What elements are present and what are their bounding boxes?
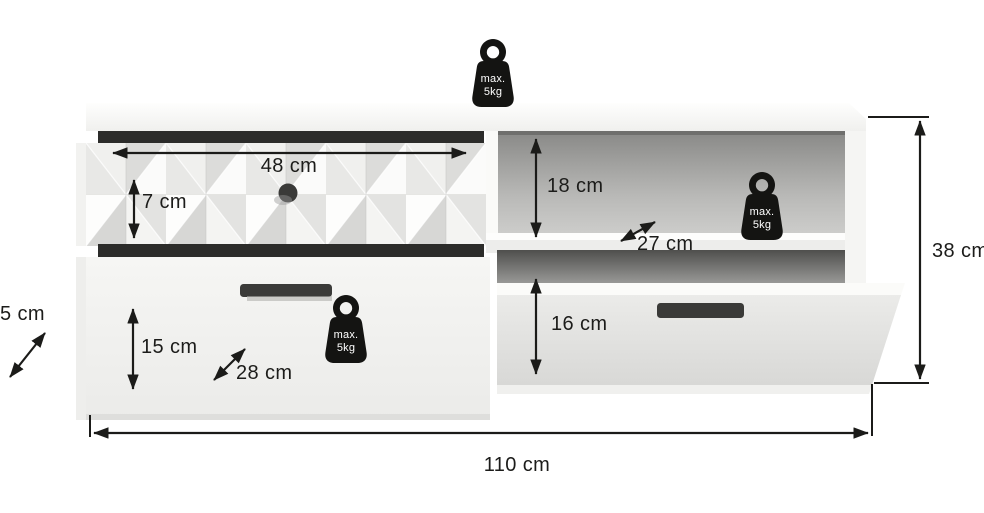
weight-limit-badge-drawer: max. 5kg: [313, 293, 379, 367]
weight-limit-text-max: max.: [729, 206, 795, 219]
bottom-recess-groove: [98, 244, 484, 257]
bottom-drawer-base-shadow: [86, 414, 490, 420]
dim-label-48cm: 48 cm: [229, 155, 349, 177]
knob-shadow: [274, 195, 292, 205]
weight-limit-badge-shelf: max. 5kg: [729, 170, 795, 244]
dim-label-110cm: 110 cm: [447, 454, 587, 476]
weight-limit-text-5kg: 5kg: [729, 219, 795, 232]
flap-bottom-edge: [497, 385, 872, 394]
furniture-dimension-diagram: 48 cm 7 cm 18 cm 27 cm 16 cm 15 cm 28 cm…: [0, 0, 984, 513]
bottom-drawer-side-edge: [76, 257, 86, 420]
drawer-side-edge: [76, 143, 86, 246]
weight-limit-text-5kg: 5kg: [313, 342, 379, 355]
flap-handle: [657, 303, 744, 318]
dim-label-16cm: 16 cm: [551, 313, 607, 335]
dim-label-15cm: 15 cm: [141, 336, 197, 358]
dim-label-28cm: 28 cm: [236, 362, 292, 384]
flap-top-edge: [497, 283, 905, 295]
weight-limit-text-max: max.: [460, 73, 526, 86]
right-side-panel: [845, 126, 866, 290]
dim-label-5cm: 5 cm: [0, 303, 45, 325]
dim-label-27cm: 27 cm: [637, 233, 693, 255]
dim-arrow-5cm: [10, 333, 45, 377]
weight-limit-badge-top: max. 5kg: [460, 37, 526, 111]
dim-label-7cm: 7 cm: [142, 191, 187, 213]
weight-limit-text-max: max.: [313, 329, 379, 342]
dim-label-18cm: 18 cm: [547, 175, 603, 197]
dim-label-38cm: 38 cm: [932, 240, 984, 262]
weight-limit-text-5kg: 5kg: [460, 86, 526, 99]
